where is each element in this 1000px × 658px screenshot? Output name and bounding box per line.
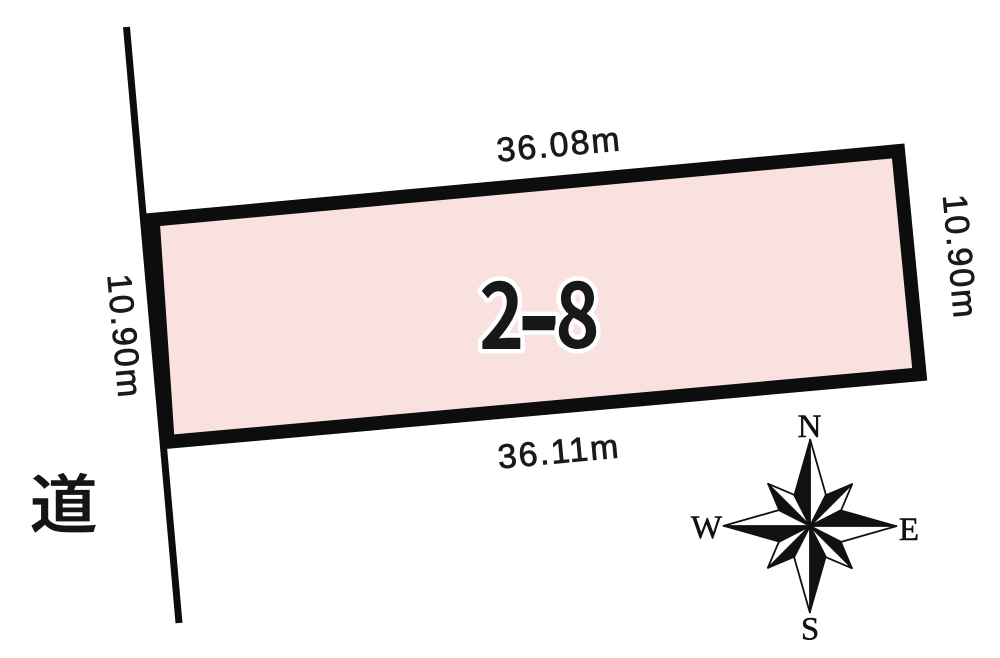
svg-text:W: W xyxy=(691,510,723,546)
svg-text:N: N xyxy=(798,409,822,445)
svg-text:E: E xyxy=(899,512,919,548)
svg-text:S: S xyxy=(801,612,819,648)
